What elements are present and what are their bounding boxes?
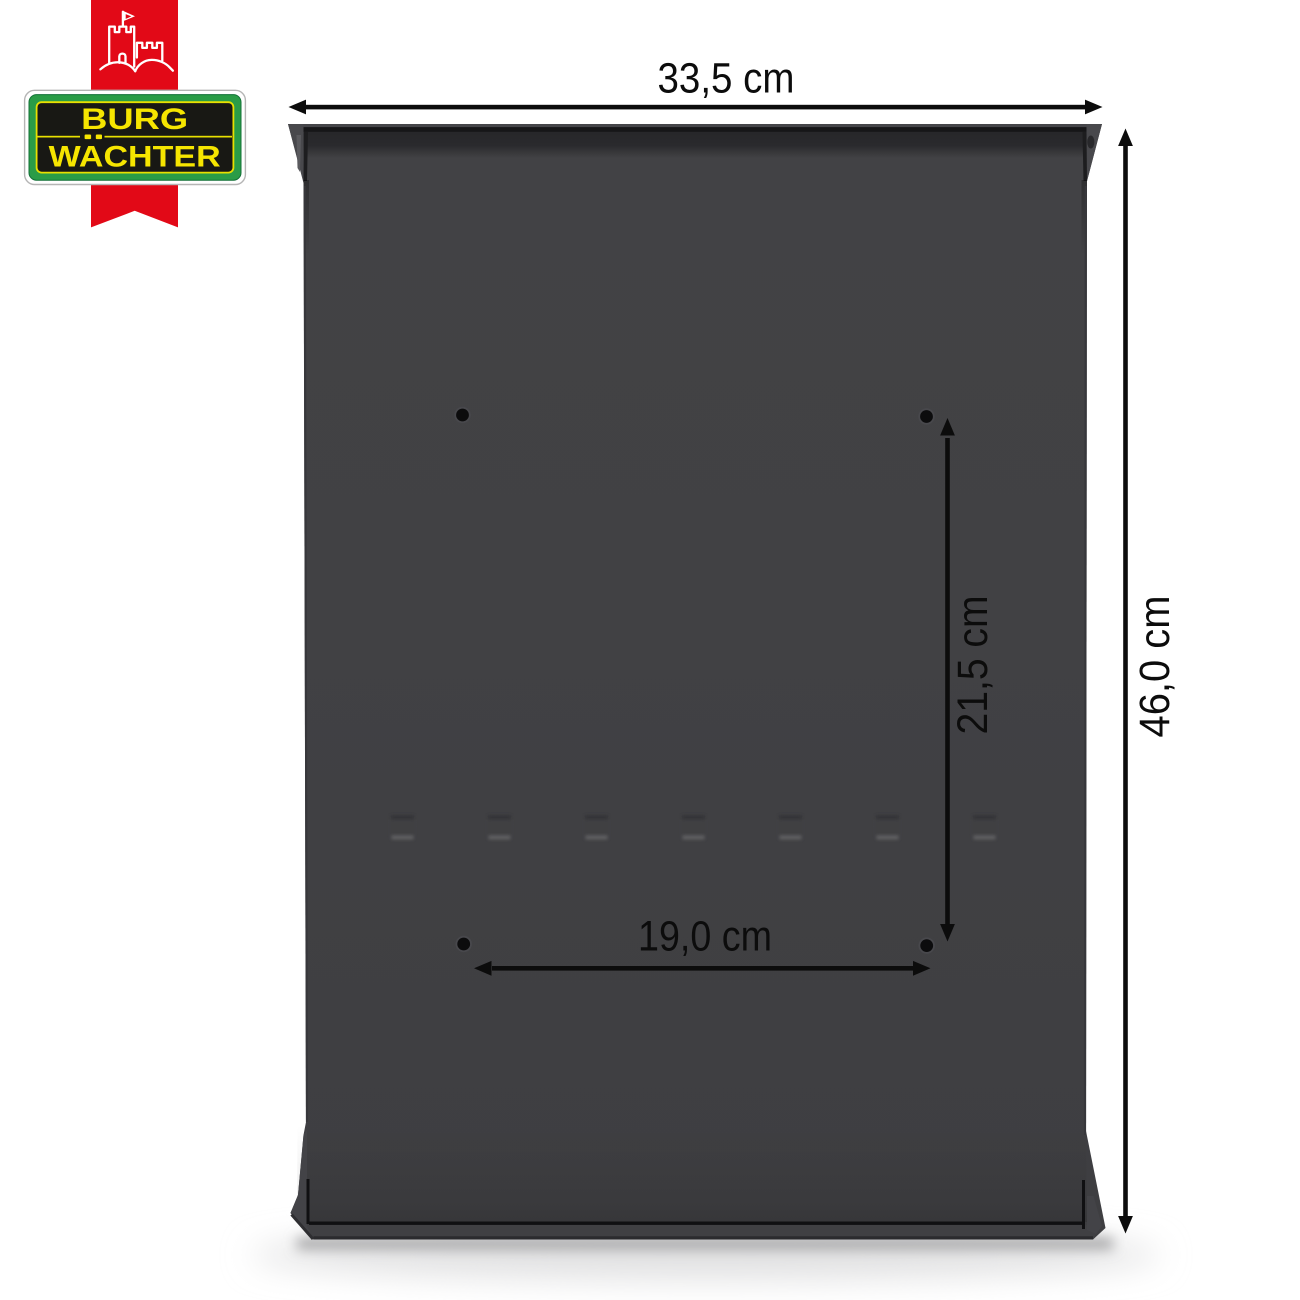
svg-text:WACHTER: WACHTER [49, 141, 221, 174]
svg-text:21,5 cm: 21,5 cm [949, 596, 997, 735]
svg-text:46,0 cm: 46,0 cm [1131, 596, 1179, 738]
svg-text:33,5 cm: 33,5 cm [658, 55, 795, 103]
svg-text:BURG: BURG [81, 103, 188, 136]
svg-text:19,0 cm: 19,0 cm [638, 913, 772, 961]
